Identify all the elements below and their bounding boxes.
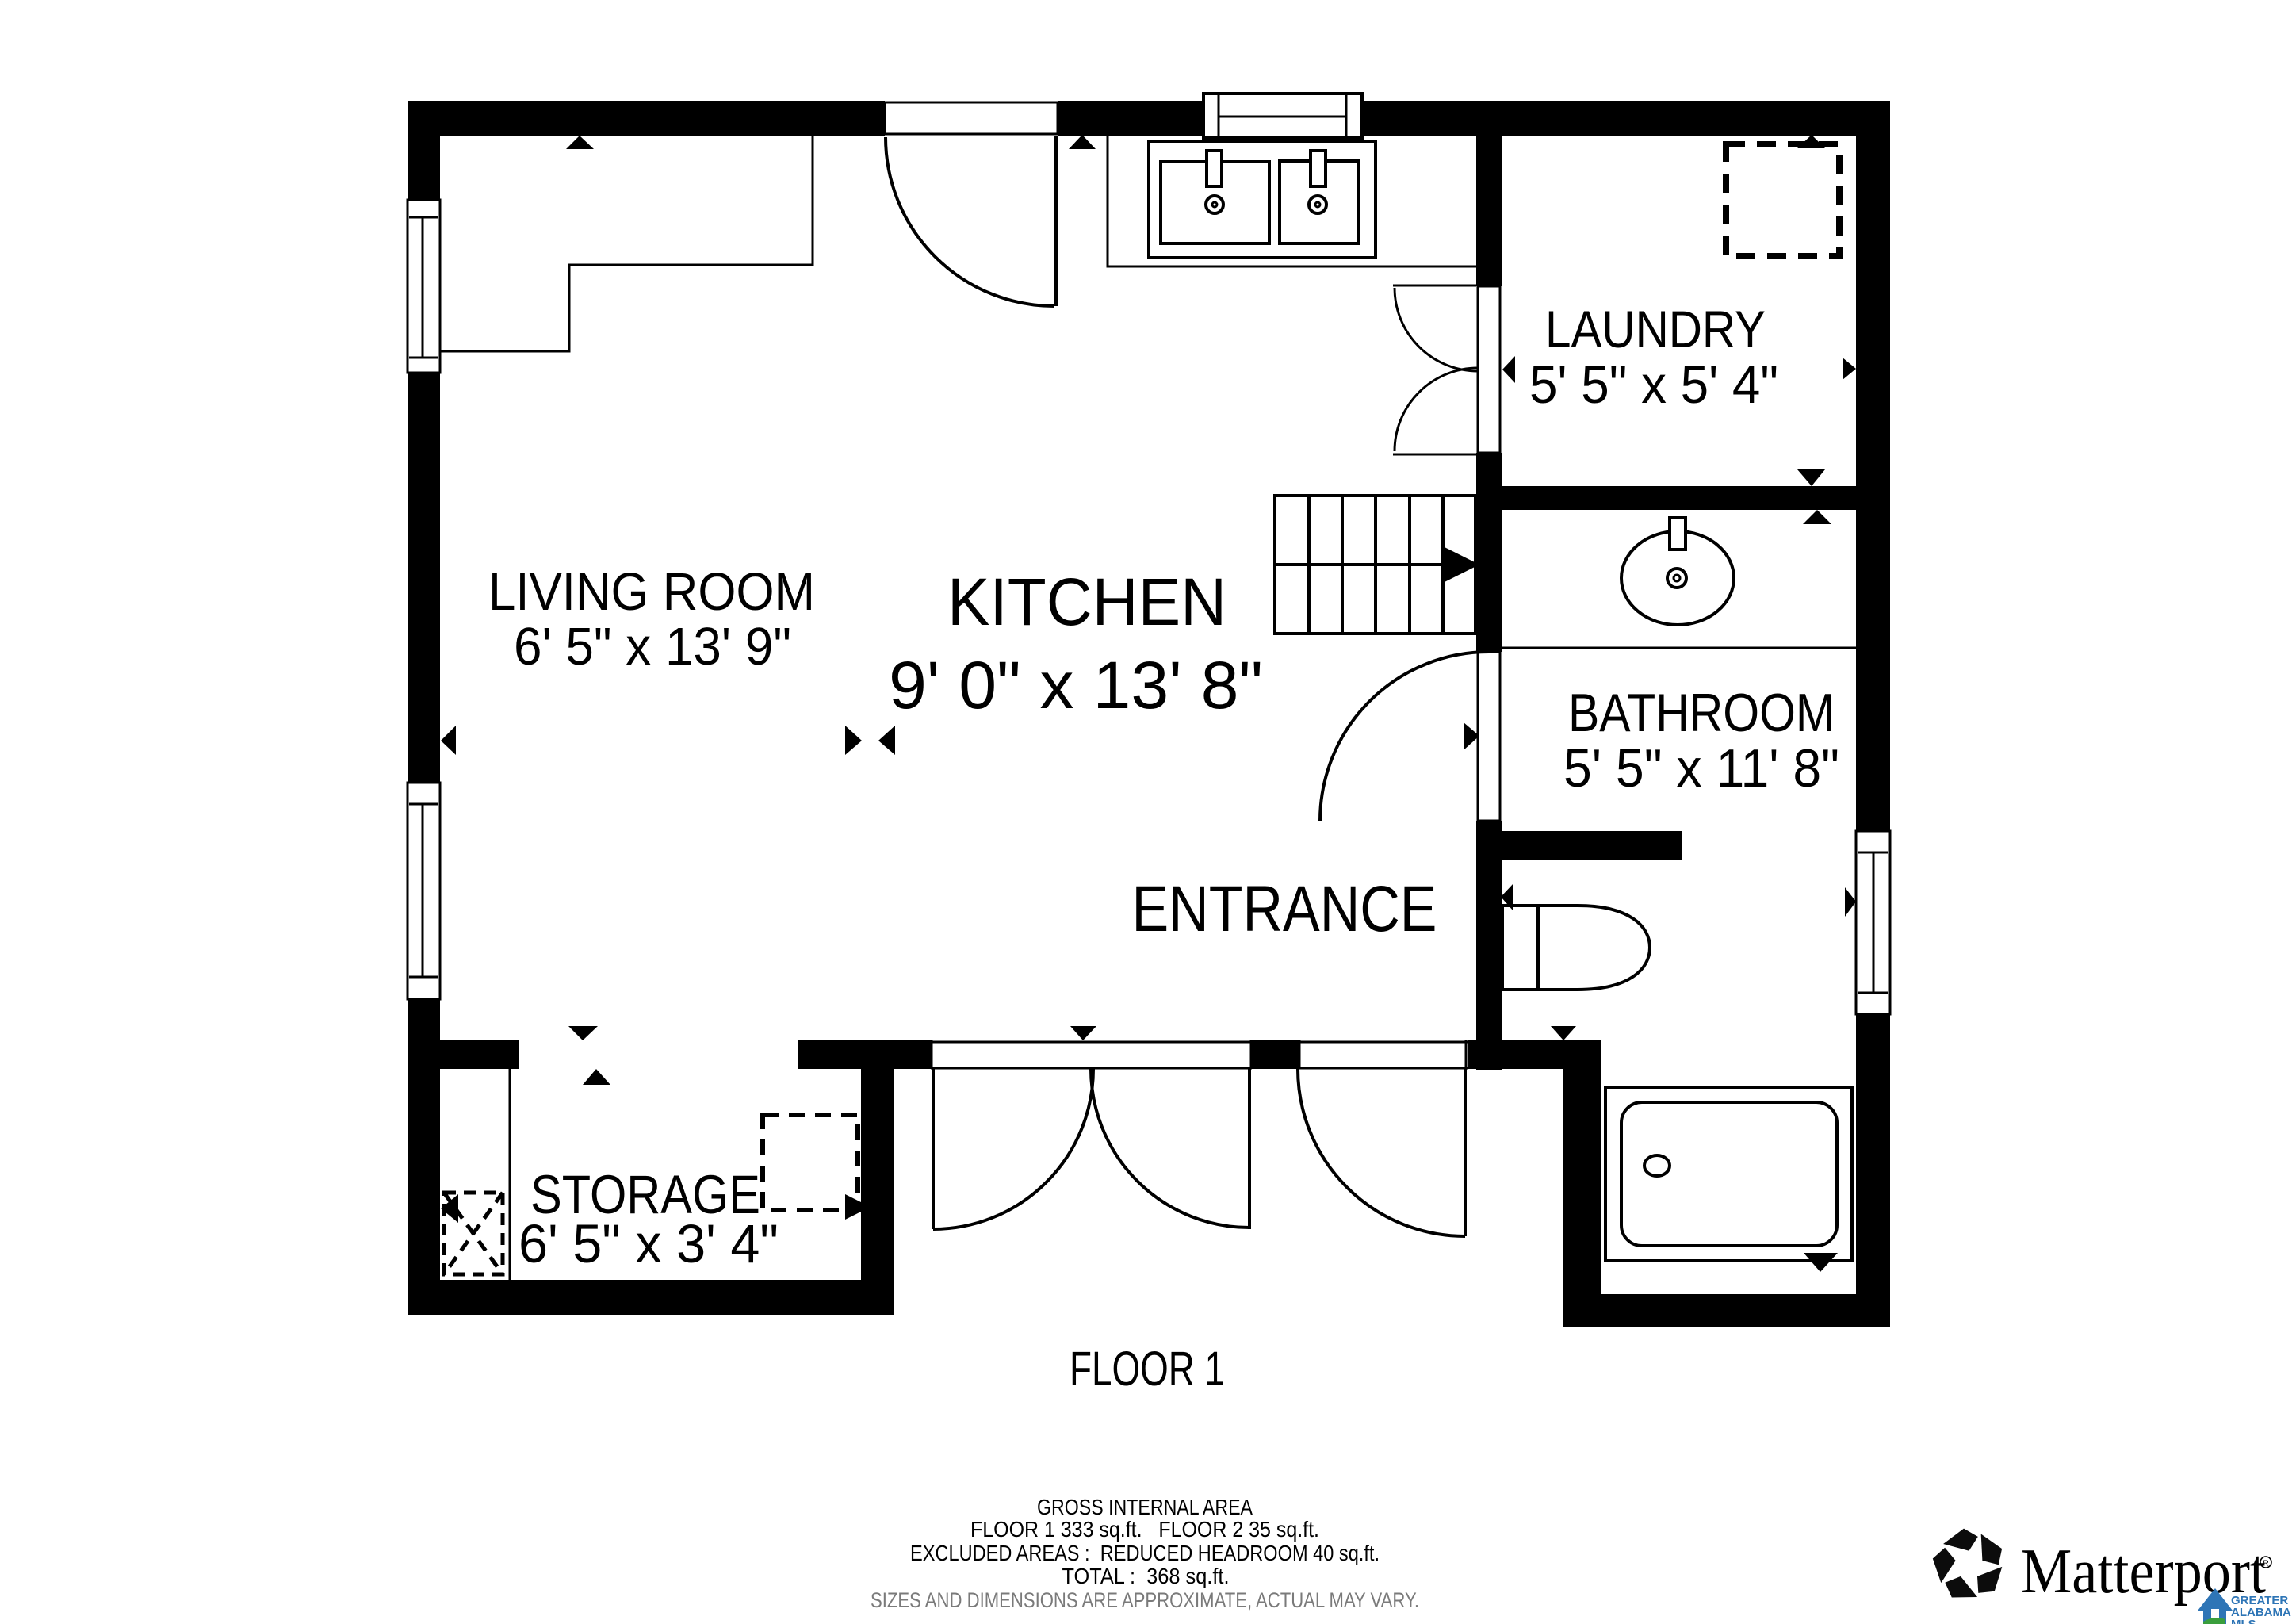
svg-text:9' 0" x 13' 8": 9' 0" x 13' 8" bbox=[889, 648, 1263, 722]
svg-text:Matterport: Matterport bbox=[2021, 1537, 2266, 1607]
svg-text:FLOOR 1: FLOOR 1 bbox=[1070, 1342, 1225, 1396]
svg-text:FLOOR 1 333 sq.ft. FLOOR 2 3: FLOOR 1 333 sq.ft. FLOOR 2 35 sq.ft. bbox=[970, 1517, 1319, 1542]
svg-text:SIZES AND DIMENSIONS ARE APPRO: SIZES AND DIMENSIONS ARE APPROXIMATE, AC… bbox=[871, 1588, 1419, 1612]
svg-text:LIVING ROOM: LIVING ROOM bbox=[488, 562, 815, 622]
svg-text:ENTRANCE: ENTRANCE bbox=[1132, 873, 1437, 945]
svg-text:GROSS INTERNAL AREA: GROSS INTERNAL AREA bbox=[1037, 1495, 1253, 1519]
svg-text:5' 5" x 5' 4": 5' 5" x 5' 4" bbox=[1529, 355, 1778, 415]
svg-text:EXCLUDED AREAS : REDUCED HEAD: EXCLUDED AREAS : REDUCED HEADROOM 40 sq.… bbox=[910, 1541, 1380, 1565]
svg-text:MLS: MLS bbox=[2231, 1618, 2256, 1624]
svg-text:6' 5" x 3' 4": 6' 5" x 3' 4" bbox=[519, 1213, 779, 1274]
svg-text:BATHROOM: BATHROOM bbox=[1568, 683, 1835, 743]
svg-text:5' 5" x 11' 8": 5' 5" x 11' 8" bbox=[1563, 738, 1839, 799]
svg-text:6' 5" x 13' 9": 6' 5" x 13' 9" bbox=[514, 617, 791, 676]
svg-text:KITCHEN: KITCHEN bbox=[947, 565, 1226, 639]
svg-text:TOTAL : 368 sq.ft.: TOTAL : 368 sq.ft. bbox=[1062, 1564, 1230, 1588]
svg-text:R: R bbox=[2263, 1559, 2269, 1568]
svg-text:LAUNDRY: LAUNDRY bbox=[1545, 300, 1766, 358]
